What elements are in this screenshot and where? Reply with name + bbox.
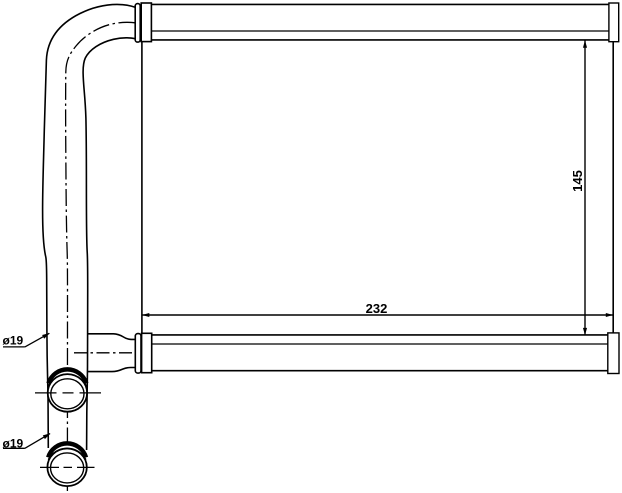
svg-text:145: 145 <box>570 170 585 192</box>
svg-text:232: 232 <box>366 301 388 316</box>
svg-text:ø19: ø19 <box>3 334 24 348</box>
